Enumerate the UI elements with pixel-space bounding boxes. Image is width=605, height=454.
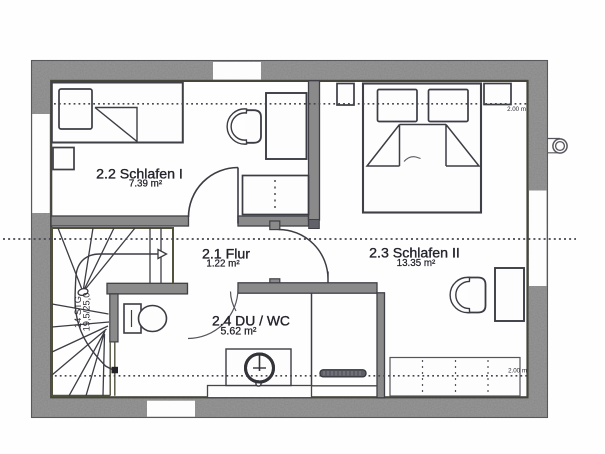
svg-text:19,5/25,0: 19,5/25,0 <box>82 293 92 332</box>
svg-text:13.35 m²: 13.35 m² <box>397 258 436 269</box>
svg-text:5.62 m²: 5.62 m² <box>221 326 257 338</box>
svg-text:2.00 m: 2.00 m <box>507 106 526 113</box>
svg-text:1.22 m²: 1.22 m² <box>206 259 240 270</box>
svg-text:2.00 m: 2.00 m <box>508 368 527 375</box>
svg-text:7.39 m²: 7.39 m² <box>129 179 163 190</box>
